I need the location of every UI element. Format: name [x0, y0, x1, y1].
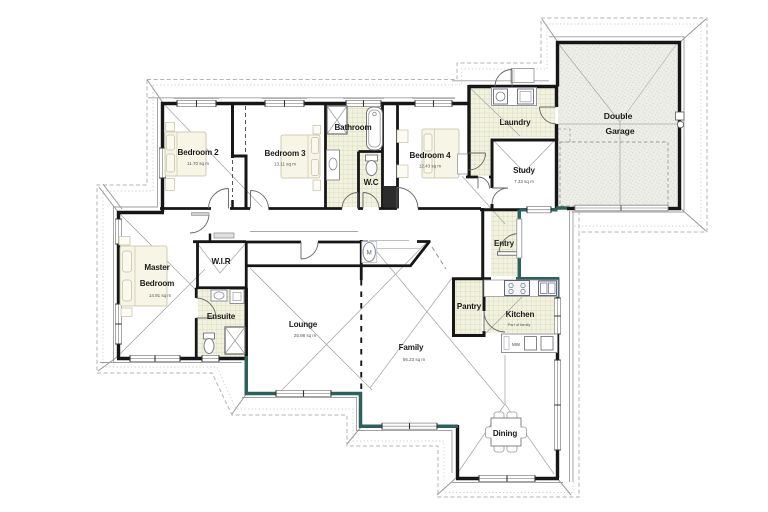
svg-text:Laundry: Laundry — [500, 118, 532, 127]
svg-text:Kitchen: Kitchen — [506, 310, 535, 319]
svg-text:Bedroom 4: Bedroom 4 — [410, 151, 452, 160]
svg-text:Lounge: Lounge — [289, 320, 318, 329]
svg-text:M: M — [367, 251, 372, 257]
svg-text:Pantry: Pantry — [457, 302, 482, 311]
svg-text:W.C: W.C — [364, 178, 379, 187]
svg-text:Entry: Entry — [494, 239, 515, 248]
svg-text:Part of family: Part of family — [508, 322, 531, 327]
svg-text:Ensuite: Ensuite — [207, 312, 236, 321]
svg-text:13.11 sq m: 13.11 sq m — [274, 162, 296, 167]
svg-text:Dining: Dining — [493, 429, 517, 438]
svg-text:Garage: Garage — [605, 126, 634, 136]
svg-text:56.23 sq m: 56.23 sq m — [403, 357, 426, 362]
svg-text:14.91 sq m: 14.91 sq m — [149, 293, 172, 298]
svg-text:11.70 sq m: 11.70 sq m — [187, 161, 209, 166]
svg-text:Bedroom 2: Bedroom 2 — [178, 148, 220, 157]
svg-text:Study: Study — [513, 166, 535, 175]
svg-text:7.33 sq m: 7.33 sq m — [514, 179, 534, 184]
svg-text:MW: MW — [512, 342, 521, 347]
svg-text:Bathroom: Bathroom — [334, 123, 371, 132]
svg-text:Master: Master — [144, 263, 170, 272]
svg-text:Family: Family — [399, 343, 424, 352]
svg-text:W.I.R: W.I.R — [211, 257, 230, 266]
svg-text:Bedroom 3: Bedroom 3 — [265, 149, 307, 158]
svg-text:12.43 sq m: 12.43 sq m — [419, 164, 442, 169]
svg-text:Double: Double — [604, 111, 633, 121]
svg-text:Bedroom: Bedroom — [140, 279, 174, 288]
svg-text:25.98 sq m: 25.98 sq m — [294, 333, 317, 338]
